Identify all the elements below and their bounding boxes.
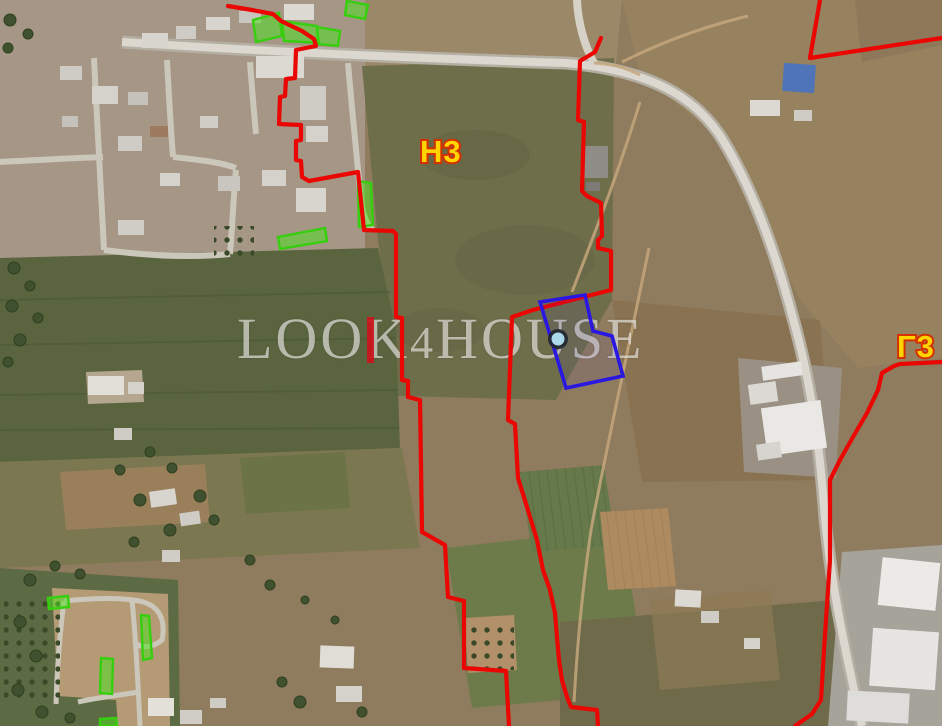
watermark-k-red-stem	[367, 317, 374, 363]
watermark-segment-four: 4	[410, 320, 436, 366]
watermark-segment-post: HOUSE	[436, 310, 644, 368]
map-viewport[interactable]: LOOK4HOUSE H3 Γ3	[0, 0, 942, 726]
watermark-segment-k: K	[365, 310, 410, 368]
watermark-segment-pre: LOO	[237, 310, 365, 368]
watermark: LOOK4HOUSE	[237, 310, 644, 372]
